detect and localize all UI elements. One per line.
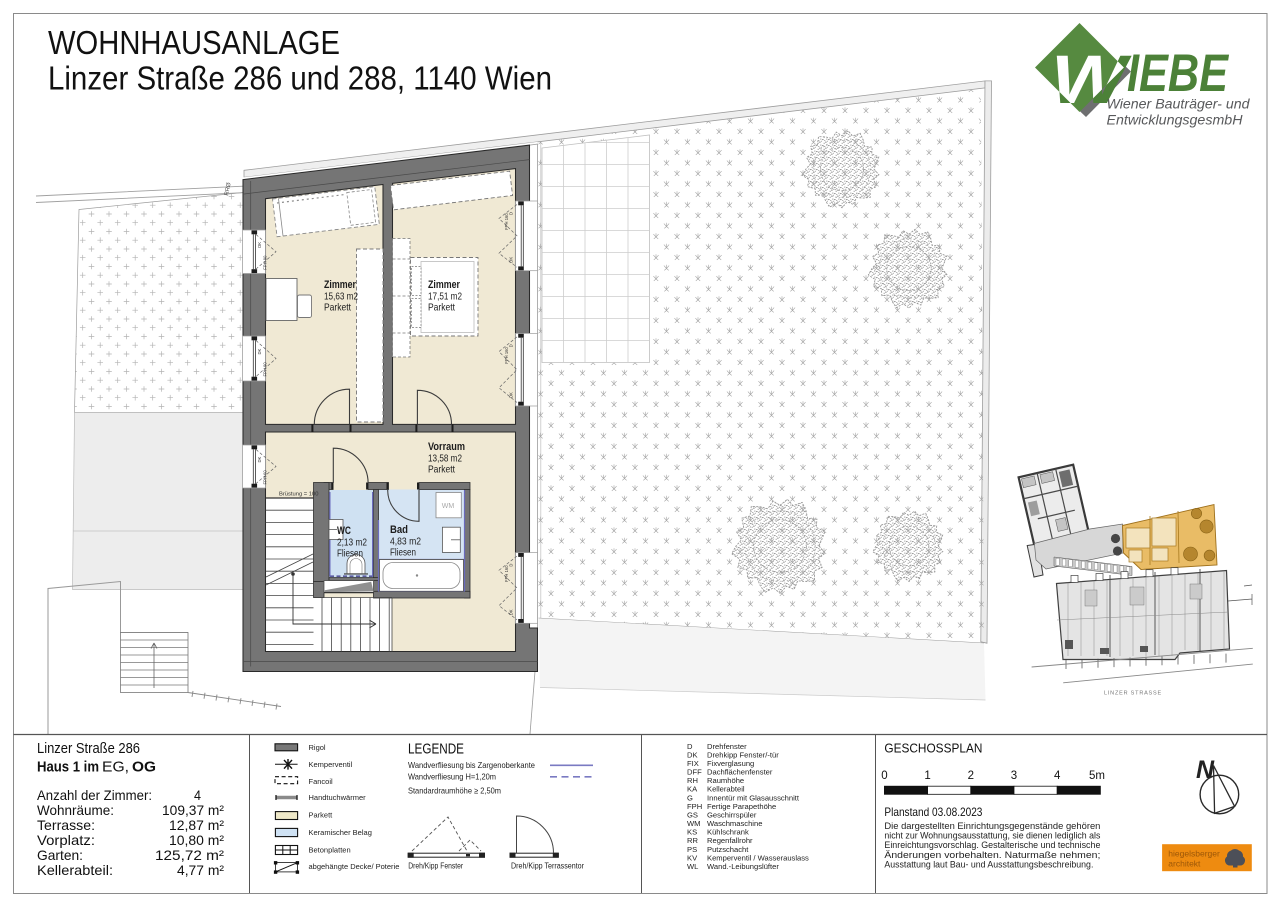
svg-text:OG: OG [132,760,156,776]
svg-text:Parkett: Parkett [324,302,351,314]
svg-text:D: D [509,212,514,215]
svg-text:LEGENDE: LEGENDE [408,742,464,758]
svg-text:Wohnräume:: Wohnräume: [37,802,114,818]
svg-text:4: 4 [194,787,201,803]
svg-text:3: 3 [1011,770,1017,782]
svg-text:4,77 m²: 4,77 m² [177,862,224,878]
svg-text:Standardraumhöhe ≥ 2,50m: Standardraumhöhe ≥ 2,50m [408,785,501,795]
svg-text:Kemperventil: Kemperventil [309,760,353,769]
svg-text:Kellerabteil:: Kellerabteil: [37,862,113,878]
svg-text:Garten:: Garten: [37,847,83,863]
svg-text:Parkett: Parkett [428,464,455,476]
svg-text:Fliesen: Fliesen [337,548,363,560]
svg-text:2: 2 [968,770,974,782]
svg-text:FPH 90: FPH 90 [263,362,268,377]
svg-text:WOHNHAUSANLAGE: WOHNHAUSANLAGE [48,24,340,61]
svg-text:WM: WM [442,503,455,510]
svg-text:Parkett: Parkett [428,302,455,314]
svg-text:Vorplatz:: Vorplatz: [37,832,95,848]
svg-text:WC: WC [337,525,351,537]
svg-text:Rigol: Rigol [309,743,326,752]
svg-text:GESCHOSSPLAN: GESCHOSSPLAN [884,742,982,756]
svg-text:Wandverfliesung H=1,20m: Wandverfliesung H=1,20m [408,771,496,781]
svg-text:Wandverfliesung bis Zargenober: Wandverfliesung bis Zargenoberkante [408,760,535,770]
svg-text:LINZER STRASSE: LINZER STRASSE [1104,691,1162,697]
svg-text:Zimmer: Zimmer [324,279,357,291]
svg-text:FPH 160: FPH 160 [504,347,509,364]
svg-text:Haus 1 im: Haus 1 im [37,760,99,776]
svg-text:D: D [509,344,514,347]
svg-text:DK: DK [509,609,514,615]
svg-text:FPH 90: FPH 90 [263,255,268,270]
svg-text:DK: DK [509,392,514,398]
svg-text:Keramischer Belag: Keramischer Belag [309,828,372,837]
svg-text:D: D [509,564,514,567]
svg-text:N: N [1196,756,1215,784]
svg-text:1: 1 [924,770,930,782]
svg-text:abgehängte Decke/ Poterie: abgehängte Decke/ Poterie [309,862,400,871]
svg-text:10,80 m²: 10,80 m² [169,832,224,848]
svg-text:Betonplatten: Betonplatten [309,845,351,854]
svg-text:Wiener Bauträger- und: Wiener Bauträger- und [1107,97,1251,112]
svg-text:EntwicklungsgesmbH: EntwicklungsgesmbH [1107,113,1243,128]
svg-text:architekt: architekt [1168,859,1201,869]
svg-text:Planstand 03.08.2023: Planstand 03.08.2023 [884,805,982,819]
svg-text:hiegelsberger: hiegelsberger [1168,849,1220,859]
svg-text:Anzahl der Zimmer:: Anzahl der Zimmer: [37,787,152,803]
svg-text:DK: DK [257,348,262,354]
svg-text:Wand.-Leibungslüfter: Wand.-Leibungslüfter [707,862,779,871]
svg-text:Terrasse:: Terrasse: [37,817,95,833]
svg-text:Dreh/Kipp Terrassentor: Dreh/Kipp Terrassentor [511,862,584,871]
svg-text:Brüstung = 100: Brüstung = 100 [279,492,318,498]
svg-text:Linzer Straße 286: Linzer Straße 286 [37,741,140,757]
svg-text:125,72 m²: 125,72 m² [155,847,224,863]
svg-text:109,37 m²: 109,37 m² [162,802,224,818]
svg-text:0: 0 [881,770,887,782]
svg-text:Linzer Straße 286 und 288, 114: Linzer Straße 286 und 288, 1140 Wien [48,60,552,97]
svg-text:Handtuchwärmer: Handtuchwärmer [309,793,367,802]
svg-text:WL: WL [687,862,698,871]
svg-text:Vorraum: Vorraum [428,441,465,453]
svg-text:Dreh/Kipp Fenster: Dreh/Kipp Fenster [408,862,463,871]
svg-text:EG,: EG, [102,760,129,776]
svg-text:DK: DK [509,257,514,263]
svg-text:IEBE: IEBE [1127,44,1229,103]
svg-text:FPH 60: FPH 60 [263,470,268,485]
svg-text:Zimmer: Zimmer [428,279,461,291]
svg-text:DK: DK [257,242,262,248]
svg-text:Fliesen: Fliesen [390,547,416,559]
svg-text:Bad: Bad [390,524,408,536]
svg-text:Parkett: Parkett [309,811,334,820]
svg-text:4: 4 [1054,770,1061,782]
svg-text:DK: DK [257,456,262,462]
svg-text:5m: 5m [1089,770,1105,782]
svg-text:12,87 m²: 12,87 m² [169,817,224,833]
svg-text:Ausstattung laut Bau- und Auss: Ausstattung laut Bau- und Ausstattungsbe… [884,859,1093,870]
svg-text:Fancoil: Fancoil [309,777,334,786]
